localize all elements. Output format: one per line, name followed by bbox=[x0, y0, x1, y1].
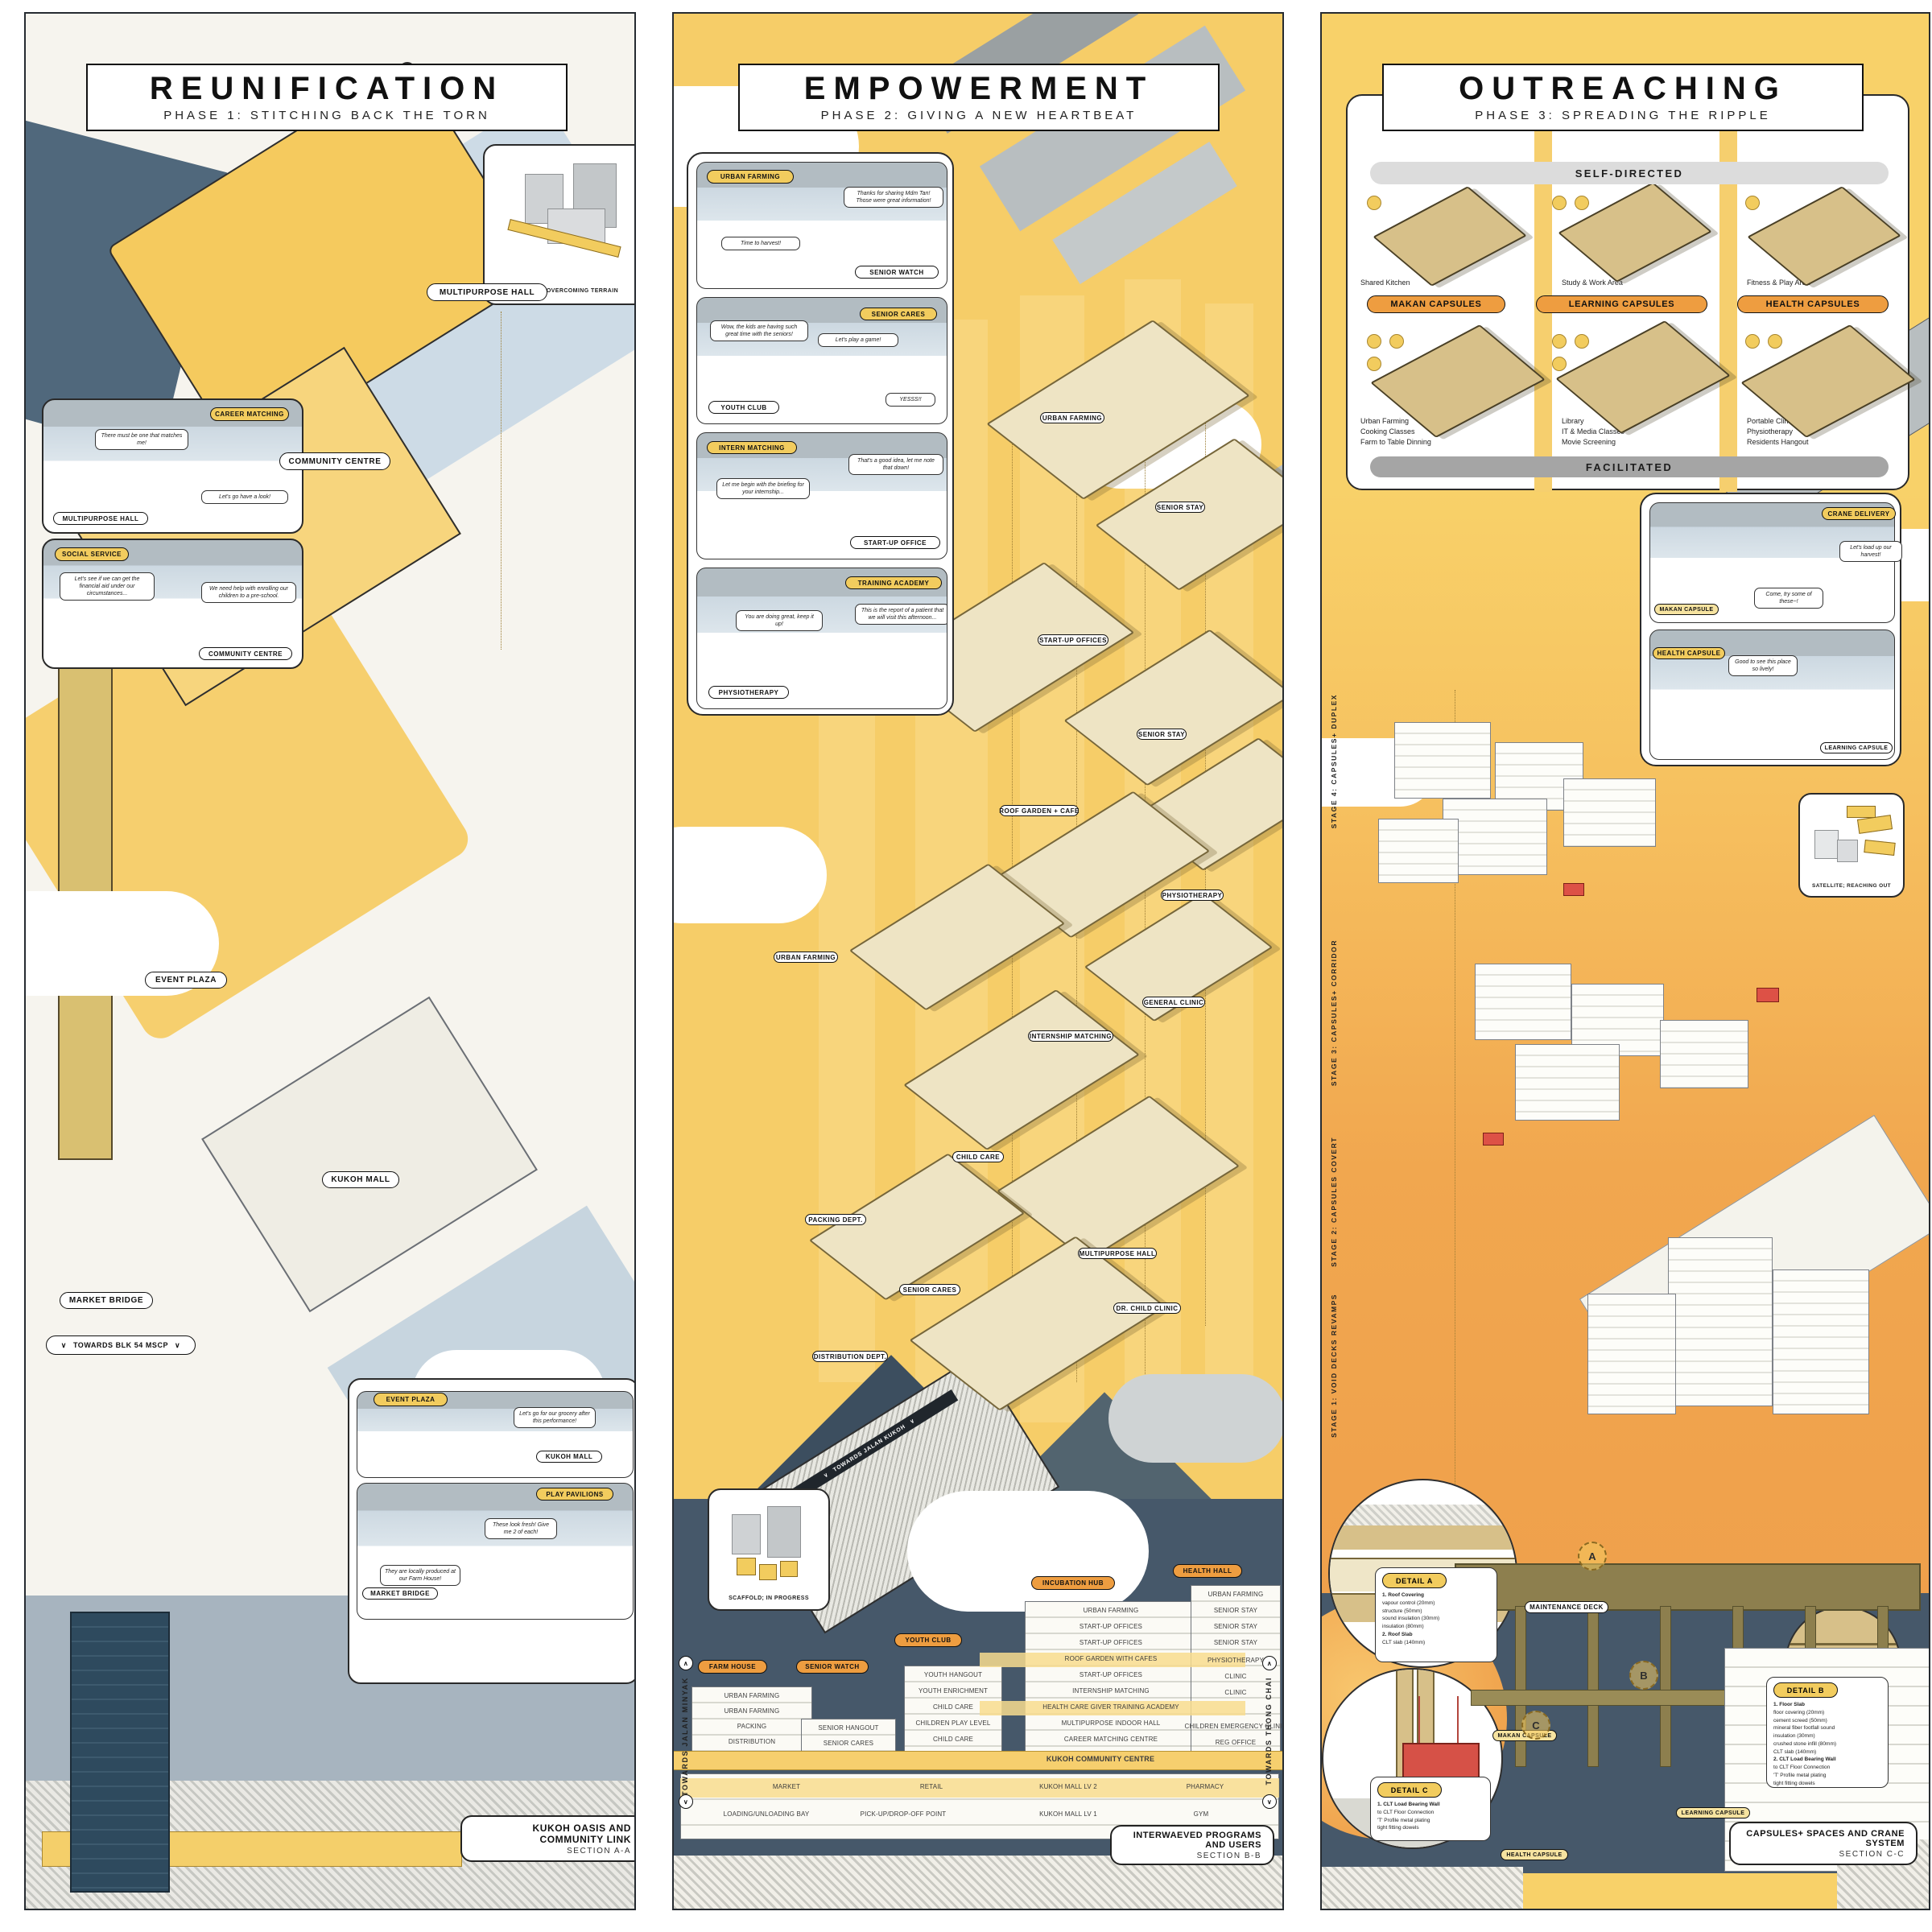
tag-play-pavilions: PLAY PAVILIONS bbox=[536, 1488, 613, 1501]
idea-icon bbox=[1552, 357, 1567, 371]
label-startup-office: START-UP OFFICE bbox=[850, 536, 940, 549]
panel-reunification: REUNIFICATION PHASE 1: STITCHING BACK TH… bbox=[24, 12, 636, 1910]
vignette-column: URBAN FARMING Thanks for sharing Mdm Tan… bbox=[687, 152, 954, 716]
scaffold-inset: SCAFFOLD; IN PROGRESS bbox=[708, 1488, 830, 1611]
section-b-b-box: INTERWAEVED PROGRAMS AND USERS SECTION B… bbox=[1110, 1825, 1274, 1865]
stage-4-label: STAGE 4: CAPSULES+ DUPLEX bbox=[1330, 694, 1338, 828]
hdb-tower-block bbox=[1773, 1269, 1869, 1414]
massing-cube bbox=[732, 1514, 761, 1554]
capsule-vignette-card: CRANE DELIVERY Let's load up our harvest… bbox=[1640, 493, 1901, 766]
marker-a: A bbox=[1578, 1542, 1607, 1571]
speech-bubble: That's a good idea, let me note that dow… bbox=[848, 454, 943, 475]
pill-health-hall: HEALTH HALL bbox=[1173, 1564, 1242, 1578]
label-multipurpose-hall: MULTIPURPOSE HALL bbox=[427, 283, 547, 301]
red-capsule bbox=[1757, 988, 1779, 1002]
social-service-inset: SOCIAL SERVICE Let's see if we can get t… bbox=[42, 539, 303, 669]
vignette-urban-farming: URBAN FARMING Thanks for sharing Mdm Tan… bbox=[696, 162, 947, 289]
mall-label: PHARMACY bbox=[1187, 1783, 1224, 1790]
capsule-block bbox=[1378, 819, 1459, 883]
career-matching-inset: CAREER MATCHING There must be one that m… bbox=[42, 398, 303, 534]
stage-2-label: STAGE 2: CAPSULES COVERT bbox=[1330, 1137, 1338, 1267]
floor-label: URBAN FARMING bbox=[724, 1692, 780, 1699]
label-physiotherapy: PHYSIOTHERAPY bbox=[708, 686, 789, 699]
chevron-up-icon: ∧ bbox=[683, 1660, 688, 1667]
speech-bubble: There must be one that matches me! bbox=[95, 429, 188, 450]
speech-bubble: Let's go for our grocery after this perf… bbox=[514, 1407, 596, 1428]
tag-crane-delivery: CRANE DELIVERY bbox=[1822, 507, 1896, 520]
speech-bubble: Time to harvest! bbox=[721, 237, 800, 250]
navy-tower bbox=[70, 1612, 170, 1893]
axon-label: PACKING DEPT. bbox=[805, 1214, 866, 1225]
floor-label: YOUTH ENRICHMENT bbox=[919, 1687, 988, 1695]
mall-label: MARKET bbox=[773, 1783, 800, 1790]
stage-3-label: STAGE 3: CAPSULES+ CORRIDOR bbox=[1330, 939, 1338, 1086]
pill-farm-house: FARM HOUSE bbox=[698, 1660, 767, 1674]
floor-label: SENIOR CARES bbox=[824, 1740, 873, 1747]
speech-bubble: Come, try some of these~! bbox=[1754, 588, 1823, 609]
chevron-down-icon: ∨ bbox=[175, 1341, 180, 1350]
axon-label: SENIOR STAY bbox=[1155, 502, 1205, 513]
floor-label: REG OFFICE bbox=[1216, 1739, 1257, 1746]
heart-icon bbox=[1745, 196, 1760, 210]
panel3-subtitle: PHASE 3: SPREADING THE RIPPLE bbox=[1475, 109, 1770, 122]
pill-senior-watch: SENIOR WATCH bbox=[796, 1660, 869, 1674]
marker-b: B bbox=[1629, 1661, 1658, 1690]
floor-label: MULTIPURPOSE INDOOR HALL bbox=[1062, 1719, 1161, 1727]
axon-label: ROOF GARDEN + CAFE bbox=[1000, 805, 1079, 816]
floor-label: PACKING bbox=[737, 1723, 767, 1730]
tag-intern-matching: INTERN MATCHING bbox=[707, 441, 797, 454]
vignette-intern-matching: INTERN MATCHING Let me begin with the br… bbox=[696, 432, 947, 559]
self-directed-bar: SELF-DIRECTED bbox=[1370, 162, 1889, 184]
axon-label: CHILD CARE bbox=[952, 1151, 1004, 1162]
label-makan-capsule: MAKAN CAPSULE bbox=[1654, 604, 1719, 615]
tag-career-matching: CAREER MATCHING bbox=[210, 407, 289, 421]
floor-label: CLINIC bbox=[1224, 1689, 1246, 1696]
capsule-axon bbox=[1373, 186, 1527, 287]
detail-c-tag: DETAIL C bbox=[1377, 1782, 1442, 1798]
chevron-down-badge: ∨ bbox=[679, 1794, 693, 1809]
chevron-up-badge: ∧ bbox=[1262, 1656, 1277, 1670]
crane-cable bbox=[1457, 1696, 1459, 1744]
panel2-title: EMPOWERMENT bbox=[804, 72, 1154, 105]
speech-bubble: This is the report of a patient that we … bbox=[855, 604, 947, 625]
floor-label: HEALTH CARE GIVER TRAINING ACADEMY bbox=[1042, 1703, 1179, 1711]
speech-bubble: Let's see if we can get the financial ai… bbox=[60, 572, 155, 601]
mall-label: KUKOH MALL LV 1 bbox=[1039, 1810, 1097, 1818]
floor-label: DISTRIBUTION bbox=[729, 1738, 775, 1745]
book-icon bbox=[1552, 196, 1567, 210]
mall-label: GYM bbox=[1194, 1810, 1209, 1818]
speech-bubble: Let's load up our harvest! bbox=[1839, 541, 1902, 562]
column-post bbox=[1660, 1606, 1671, 1767]
media-icon bbox=[1575, 334, 1589, 349]
floor-label: CHILD CARE bbox=[933, 1703, 973, 1711]
capsule-axon bbox=[1747, 186, 1901, 287]
kitchen-icon bbox=[1367, 334, 1381, 349]
satellite-inset: SATELLITE; REACHING OUT bbox=[1798, 793, 1905, 898]
tree-cloud bbox=[907, 1491, 1149, 1612]
chevron-down-icon: ∨ bbox=[1267, 1798, 1272, 1806]
tag-social-service: SOCIAL SERVICE bbox=[55, 547, 129, 561]
mall-label: PICK-UP/DROP-OFF POINT bbox=[861, 1810, 947, 1818]
axon-label: DISTRIBUTION DEPT. bbox=[812, 1351, 888, 1362]
pill-incubation-hub: INCUBATION HUB bbox=[1031, 1576, 1115, 1590]
floor-label: CLINIC bbox=[1224, 1673, 1246, 1680]
speech-bubble: They are locally produced at our Farm Ho… bbox=[380, 1565, 460, 1586]
speech-bubble: These look fresh! Give me 2 of each! bbox=[485, 1518, 557, 1539]
label-health-capsule-section: HEALTH CAPSULE bbox=[1501, 1849, 1568, 1860]
gray-cloud bbox=[1108, 1374, 1284, 1463]
label-maintenance-deck: MAINTENANCE DECK bbox=[1525, 1601, 1608, 1613]
floor-label: SENIOR STAY bbox=[1214, 1607, 1257, 1614]
panel3-title: OUTREACHING bbox=[1459, 72, 1787, 105]
yellow-capsule-cube bbox=[780, 1561, 798, 1577]
capsule-block bbox=[1394, 722, 1491, 799]
axon-label: START-UP OFFICES bbox=[1038, 634, 1108, 646]
mall-plate bbox=[201, 997, 538, 1312]
tag-urban-farming: URBAN FARMING bbox=[707, 170, 794, 184]
dining-icon bbox=[1367, 357, 1381, 371]
speech-bubble: Let's play a game! bbox=[818, 333, 898, 347]
label-learning-capsule: LEARNING CAPSULE bbox=[1820, 742, 1893, 753]
chevron-down-icon: ∨ bbox=[823, 1472, 830, 1480]
axon-label: SENIOR CARES bbox=[899, 1284, 960, 1295]
label-kukoh-mall: KUKOH MALL bbox=[322, 1171, 399, 1188]
speech-bubble: Thanks for sharing Mdm Tan! Those were g… bbox=[844, 187, 943, 208]
vignette-senior-cares: SENIOR CARES Wow, the kids are having su… bbox=[696, 297, 947, 424]
panel1-subtitle: PHASE 1: STITCHING BACK THE TORN bbox=[163, 109, 490, 122]
ground-hatch bbox=[1322, 1867, 1523, 1910]
label-community-centre: COMMUNITY CENTRE bbox=[279, 452, 390, 470]
detail-c-box: DETAIL C 1. CLT Load Bearing Wall to CLT… bbox=[1370, 1777, 1491, 1841]
floor-label: ROOF GARDEN WITH CAFES bbox=[1065, 1655, 1158, 1662]
column-post bbox=[1587, 1606, 1599, 1767]
media-icon bbox=[1575, 196, 1589, 210]
label-event-plaza: EVENT PLAZA bbox=[145, 972, 227, 989]
speech-bubble: Good to see this place so lively! bbox=[1728, 655, 1798, 676]
floor-label: URBAN FARMING bbox=[1208, 1591, 1264, 1598]
poster-board: REUNIFICATION PHASE 1: STITCHING BACK TH… bbox=[0, 0, 1932, 1932]
label-community-centre-inset: COMMUNITY CENTRE bbox=[199, 647, 292, 660]
capsule-block bbox=[1515, 1044, 1620, 1121]
chevron-up-icon: ∧ bbox=[1267, 1660, 1272, 1667]
caption-shared-kitchen: Shared Kitchen bbox=[1360, 278, 1410, 288]
pill-youth-club: YOUTH CLUB bbox=[894, 1633, 962, 1647]
tag-training-academy: TRAINING ACADEMY bbox=[845, 576, 942, 589]
pill-learning-capsules: LEARNING CAPSULES bbox=[1536, 295, 1707, 313]
panel2-header: EMPOWERMENT PHASE 2: GIVING A NEW HEARTB… bbox=[738, 64, 1220, 131]
chevron-up-badge: ∧ bbox=[679, 1656, 693, 1670]
panel1-title: REUNIFICATION bbox=[150, 72, 504, 105]
scaffold-caption: SCAFFOLD; IN PROGRESS bbox=[709, 1596, 828, 1601]
floor-label: START-UP OFFICES bbox=[1080, 1639, 1142, 1646]
marker-c: C bbox=[1521, 1711, 1550, 1740]
axon-label: INTERNSHIP MATCHING bbox=[1028, 1030, 1113, 1042]
panel1-header: REUNIFICATION PHASE 1: STITCHING BACK TH… bbox=[86, 64, 568, 131]
chevron-down-icon: ∨ bbox=[909, 1418, 916, 1426]
detail-b-box: DETAIL B 1. Floor Slab floor covering (2… bbox=[1766, 1677, 1889, 1788]
farming-icon bbox=[1389, 334, 1404, 349]
mall-label: LOADING/UNLOADING BAY bbox=[724, 1810, 810, 1818]
section-c-c-box: CAPSULES+ SPACES AND CRANE SYSTEM SECTIO… bbox=[1729, 1822, 1918, 1865]
label-senior-watch: SENIOR WATCH bbox=[855, 266, 939, 279]
guide-line bbox=[501, 312, 502, 650]
label-youth-club: YOUTH CLUB bbox=[708, 401, 779, 414]
floor-label: CAREER MATCHING CENTRE bbox=[1064, 1736, 1158, 1743]
crane-cable bbox=[1418, 1696, 1420, 1744]
floor-label: CHILDREN PLAY LEVEL bbox=[915, 1719, 990, 1727]
column-divider bbox=[1719, 96, 1737, 492]
red-capsule bbox=[1483, 1133, 1504, 1146]
capsule-block bbox=[1563, 778, 1656, 847]
label-learning-capsule-section: LEARNING CAPSULE bbox=[1676, 1807, 1750, 1818]
chevron-down-icon: ∨ bbox=[683, 1798, 688, 1806]
axon-label: URBAN FARMING bbox=[1040, 412, 1104, 423]
capsule-block bbox=[1587, 1294, 1676, 1414]
massing-cube bbox=[767, 1506, 801, 1558]
bridge-inset: BRIDGE; OVERCOMING TERRAIN bbox=[483, 144, 636, 305]
section-a-a-box: KUKOH OASIS AND COMMUNITY LINK SECTION A… bbox=[460, 1815, 636, 1862]
tag-senior-cares: SENIOR CARES bbox=[860, 308, 937, 320]
capsule-grid-card: SELF-DIRECTED FACILITATED Shared Kitchen… bbox=[1346, 94, 1909, 490]
floor-label: CHILD CARE bbox=[933, 1736, 973, 1743]
tag-event-plaza: EVENT PLAZA bbox=[374, 1393, 448, 1406]
detail-a-tag: DETAIL A bbox=[1382, 1573, 1447, 1588]
roof-layer bbox=[1330, 1505, 1517, 1525]
chevron-down-icon: ∨ bbox=[61, 1341, 67, 1350]
column-divider bbox=[1534, 96, 1552, 492]
tag-health-capsule: HEALTH CAPSULE bbox=[1653, 647, 1725, 659]
towards-thong-chai: TOWARDS THONG CHAI bbox=[1265, 1677, 1273, 1785]
floor-label: URBAN FARMING bbox=[1084, 1607, 1139, 1614]
heart-icon bbox=[1768, 334, 1782, 349]
floor-label: URBAN FARMING bbox=[724, 1707, 780, 1715]
towards-jalan-minyak: TOWARDS JALAN MINYAK bbox=[681, 1677, 689, 1796]
floor-label: SENIOR STAY bbox=[1214, 1639, 1257, 1646]
capsule-block bbox=[1660, 1020, 1748, 1088]
floor-label: START-UP OFFICES bbox=[1080, 1671, 1142, 1678]
speech-bubble: You are doing great, keep it up! bbox=[736, 610, 823, 631]
mall-label: RETAIL bbox=[920, 1783, 943, 1790]
axon-label: URBAN FARMING bbox=[774, 952, 838, 963]
speech-bubble: YESSS!! bbox=[885, 393, 935, 407]
detail-a-box: DETAIL A 1. Roof Covering vapour control… bbox=[1375, 1567, 1497, 1662]
red-capsule bbox=[1563, 883, 1584, 896]
hdb-tower-block bbox=[1668, 1237, 1773, 1406]
band-label: KUKOH COMMUNITY CENTRE bbox=[1046, 1755, 1154, 1763]
label-multipurpose-hall-inset: MULTIPURPOSE HALL bbox=[53, 512, 148, 525]
floor-label: START-UP OFFICES bbox=[1080, 1623, 1142, 1630]
satellite-caption: SATELLITE; REACHING OUT bbox=[1800, 883, 1903, 889]
axon-label: MULTIPURPOSE HALL bbox=[1078, 1248, 1157, 1259]
yellow-capsule-cube bbox=[759, 1564, 777, 1580]
floor-label: PHYSIOTHERAPY bbox=[1207, 1657, 1264, 1664]
yellow-satellite bbox=[1864, 840, 1895, 856]
book-icon bbox=[1552, 334, 1567, 349]
label-market-bridge: MARKET BRIDGE bbox=[60, 1292, 153, 1309]
axon-label: PHYSIOTHERAPY bbox=[1161, 890, 1224, 901]
speech-bubble: Wow, the kids are having such great time… bbox=[710, 320, 808, 341]
yellow-capsule-cube bbox=[737, 1558, 756, 1575]
floor-label: SENIOR HANGOUT bbox=[818, 1724, 878, 1732]
speech-bubble: We need help with enrolling our children… bbox=[201, 582, 296, 603]
chevron-down-badge: ∨ bbox=[1262, 1794, 1277, 1809]
massing-cube bbox=[1837, 840, 1858, 862]
axon-label: SENIOR STAY bbox=[1137, 729, 1187, 740]
panel-empowerment: EMPOWERMENT PHASE 2: GIVING A NEW HEARTB… bbox=[672, 12, 1284, 1910]
pill-makan-capsules: MAKAN CAPSULES bbox=[1367, 295, 1505, 313]
panel-outreaching: BLK 2 OUTREACHING PHASE 3: SPREADING THE… bbox=[1320, 12, 1930, 1910]
detail-b-tag: DETAIL B bbox=[1773, 1682, 1838, 1698]
plaza-inset: EVENT PLAZA Let's go for our grocery aft… bbox=[348, 1378, 636, 1684]
pill-health-capsules: HEALTH CAPSULES bbox=[1737, 295, 1889, 313]
label-kukoh-mall-inset: KUKOH MALL bbox=[536, 1451, 602, 1463]
floor-label: INTERNSHIP MATCHING bbox=[1072, 1687, 1150, 1695]
speech-bubble: Let's go have a look! bbox=[201, 490, 288, 504]
facilitated-bar: FACILITATED bbox=[1370, 456, 1889, 477]
label-market-bridge-inset: MARKET BRIDGE bbox=[362, 1587, 438, 1600]
cloud bbox=[672, 827, 827, 923]
floor-label: YOUTH HANGOUT bbox=[924, 1671, 982, 1678]
column-post bbox=[1515, 1606, 1526, 1767]
massing-cube bbox=[1814, 830, 1839, 859]
roof-layer bbox=[1330, 1525, 1517, 1550]
kitchen-icon bbox=[1367, 196, 1381, 210]
community-centre-band bbox=[674, 1751, 1282, 1770]
speech-bubble: Let me begin with the briefing for your … bbox=[716, 478, 810, 499]
stage-1-label: STAGE 1: VOID DECKS REVAMPS bbox=[1330, 1294, 1338, 1438]
capsule-block bbox=[1475, 964, 1571, 1040]
floor-label: SENIOR STAY bbox=[1214, 1623, 1257, 1630]
axon-label: GENERAL CLINIC bbox=[1142, 997, 1205, 1008]
panel3-header: OUTREACHING PHASE 3: SPREADING THE RIPPL… bbox=[1382, 64, 1864, 131]
yellow-satellite bbox=[1847, 806, 1876, 818]
panel2-subtitle: PHASE 2: GIVING A NEW HEARTBEAT bbox=[821, 109, 1137, 122]
vignette-training-academy: TRAINING ACADEMY You are doing great, ke… bbox=[696, 568, 947, 709]
axon-label: DR. CHILD CLINIC bbox=[1113, 1302, 1181, 1314]
clinic-icon bbox=[1745, 334, 1760, 349]
label-towards-mscp: ∨ TOWARDS BLK 54 MSCP ∨ bbox=[46, 1335, 196, 1355]
mall-label: KUKOH MALL LV 2 bbox=[1039, 1783, 1097, 1790]
